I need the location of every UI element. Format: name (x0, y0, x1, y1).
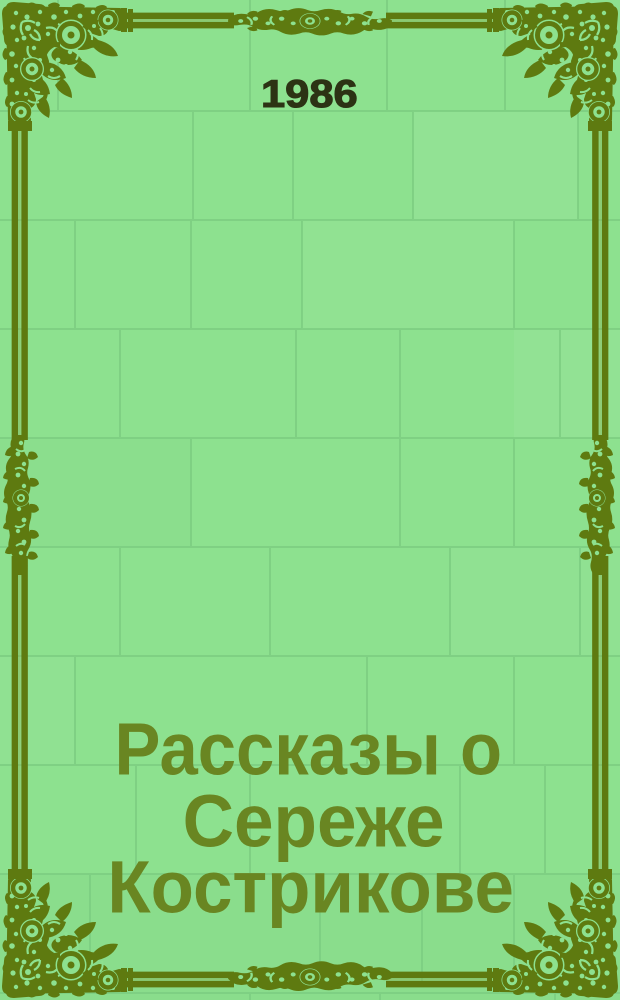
svg-text:1986: 1986 (261, 73, 358, 116)
svg-text:Рассказы о: Рассказы о (115, 708, 503, 791)
svg-text:Кострикове: Кострикове (107, 846, 514, 929)
